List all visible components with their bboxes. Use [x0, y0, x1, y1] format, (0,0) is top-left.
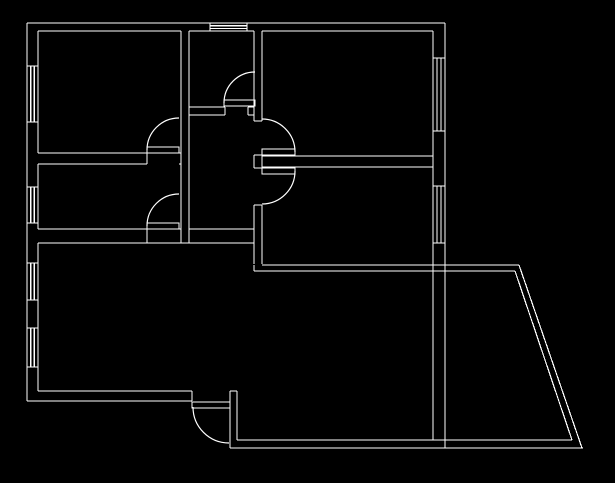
- door-swing-arc: [147, 194, 179, 226]
- windows-layer: [27, 23, 445, 367]
- door-swing-arc: [262, 119, 295, 152]
- door-arcs-layer: [147, 72, 295, 443]
- door-swing-arc: [147, 118, 179, 150]
- door-leaf: [147, 147, 179, 153]
- door-swing-arc: [193, 407, 229, 443]
- exterior-walls-layer: [27, 23, 583, 448]
- door-leaf: [262, 168, 295, 174]
- interior-walls-layer: [38, 31, 433, 264]
- door-leaves-layer: [147, 100, 295, 408]
- cad-viewport[interactable]: [0, 0, 615, 483]
- floor-plan-drawing: [0, 0, 615, 483]
- door-leaf: [262, 149, 295, 155]
- door-leaf: [192, 402, 230, 408]
- door-swing-arc: [262, 171, 295, 204]
- wall-line: [519, 265, 582, 448]
- door-leaf: [147, 223, 179, 229]
- door-leaf: [224, 100, 255, 106]
- door-swing-arc: [224, 72, 255, 103]
- wall-line: [515, 271, 572, 440]
